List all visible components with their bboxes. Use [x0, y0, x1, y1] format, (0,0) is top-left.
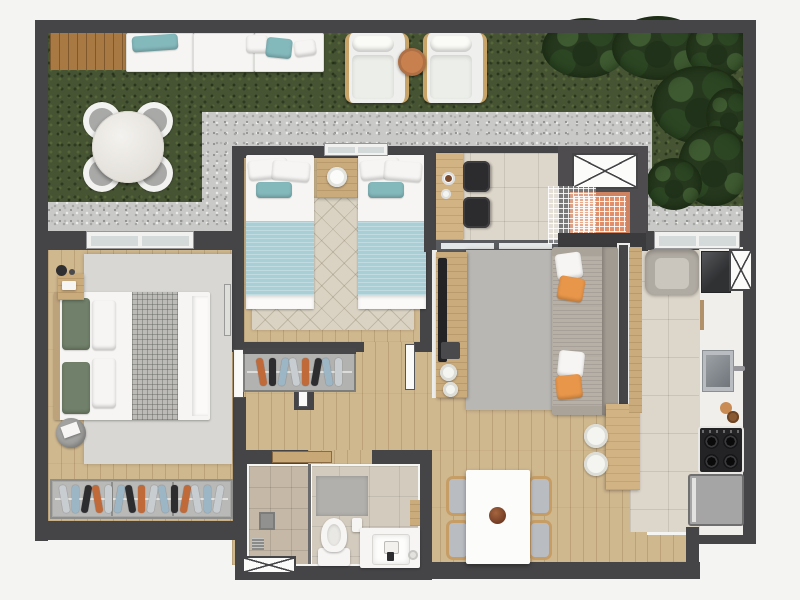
armchair-seat — [655, 258, 689, 289]
window-pane — [142, 236, 189, 246]
orange-pillow — [556, 275, 586, 303]
bar-stool — [584, 424, 608, 448]
fridge-hinges — [692, 478, 696, 522]
round-basin — [408, 550, 418, 560]
bathroom-shaft-box — [242, 556, 296, 574]
clothing-item — [59, 485, 71, 514]
bath-mat — [316, 476, 368, 516]
cutting-board — [700, 300, 704, 330]
balcony-wall-left — [424, 146, 436, 252]
nightstand-book — [62, 281, 76, 290]
wood-deck — [50, 32, 126, 70]
cooktop — [700, 428, 742, 472]
floor-plan-rendering — [0, 0, 800, 600]
single-bed-left — [246, 155, 314, 309]
bench-pillow-white — [293, 39, 317, 58]
balcony-chair — [463, 161, 490, 192]
sofa-backrest — [602, 247, 618, 415]
nightstand-lamp — [56, 265, 67, 276]
lounge-chair — [423, 33, 487, 103]
clothing-item — [147, 485, 159, 514]
clothing-item — [138, 485, 145, 513]
sheet-fold — [358, 295, 426, 309]
dining-chair — [528, 476, 552, 516]
stub-door — [298, 391, 308, 407]
white-pillow — [92, 358, 116, 408]
round-side-table — [398, 48, 426, 76]
nightstand-decor — [69, 269, 75, 275]
outer-wall-top — [35, 20, 756, 33]
hanging-clothes — [245, 354, 354, 390]
sheet-fold — [246, 295, 314, 309]
master-wardrobe — [50, 479, 233, 519]
dining-chair — [528, 520, 552, 560]
hall-open-wardrobe — [243, 348, 356, 392]
headboard — [54, 292, 60, 420]
clothing-item — [191, 485, 203, 514]
clothing-item — [288, 358, 300, 387]
bench-cushion-teal — [265, 37, 293, 60]
master-double-bed — [54, 292, 210, 420]
twin-bedroom-door-leaf — [405, 344, 415, 390]
sideboard-decor-box — [441, 342, 460, 359]
kitchen-dark-sink — [701, 251, 731, 293]
sliding-door-pane — [441, 243, 494, 249]
lounge-roll-pillow — [430, 36, 472, 52]
shrub — [646, 158, 702, 210]
bench-cushion-teal — [131, 33, 178, 52]
window-pane — [699, 236, 736, 246]
outer-wall-left — [35, 20, 48, 541]
clothing-item — [105, 485, 112, 513]
clothing-item — [72, 485, 79, 513]
burner — [723, 454, 738, 469]
teal-blanket — [246, 221, 314, 295]
fridge — [688, 474, 744, 526]
sink-basin — [706, 355, 730, 387]
orange-pillow — [555, 374, 583, 401]
sofa — [552, 247, 618, 415]
clothing-item — [310, 358, 322, 387]
master-hall-wall — [233, 397, 246, 521]
white-pillow — [92, 300, 116, 350]
round-marble-table — [92, 111, 164, 183]
sink-faucet — [733, 366, 745, 371]
balcony-chair — [463, 197, 490, 228]
clothing-item — [158, 485, 170, 514]
hanging-clothes — [53, 482, 230, 516]
balcony-wall-top — [424, 146, 568, 153]
clothing-item — [269, 358, 276, 386]
sofa-seat-cushion — [553, 307, 602, 355]
clothing-item — [335, 358, 342, 386]
clothing-item — [255, 358, 267, 387]
lounge-seat — [430, 55, 472, 99]
clothing-item — [213, 485, 225, 514]
outer-wall-bottom-dining — [424, 562, 700, 579]
sage-pillow — [62, 298, 90, 350]
vanity-faucet — [387, 552, 394, 561]
lounge-seat — [352, 55, 394, 99]
outer-wall-step — [686, 527, 699, 579]
teal-cushion — [368, 182, 404, 198]
saucer — [441, 189, 451, 199]
round-pouf — [440, 364, 457, 381]
burner — [704, 434, 719, 449]
outer-wall-bottom-left — [35, 521, 247, 540]
sliding-door-pane — [499, 243, 552, 249]
window-pane — [358, 147, 384, 153]
kitchen-steel-sink — [702, 350, 734, 392]
kitchen-shaft-box — [729, 249, 753, 291]
clothing-item — [171, 485, 178, 513]
single-bed-right — [358, 155, 426, 309]
clothing-item — [204, 485, 211, 513]
shower-drain — [252, 538, 264, 550]
lounge-roll-pillow — [352, 36, 394, 52]
breakfast-bar — [606, 404, 640, 490]
wall-mirror — [224, 284, 231, 336]
clothing-item — [180, 485, 192, 514]
clothing-item — [125, 485, 137, 514]
bed-pillow — [383, 159, 423, 182]
round-pouf — [443, 382, 458, 397]
jar — [727, 411, 739, 423]
window-pane — [91, 236, 138, 246]
clothing-item — [277, 358, 289, 387]
window-pane — [659, 236, 696, 246]
burner — [704, 454, 719, 469]
sofa-armrest — [552, 406, 602, 415]
kitchen-window — [654, 231, 740, 249]
shower-fixture — [259, 512, 275, 530]
duvet-fold — [192, 296, 208, 416]
clothing-item — [92, 485, 104, 514]
service-shaft-box — [572, 153, 638, 189]
living-rug — [466, 250, 554, 410]
bar-stool — [584, 452, 608, 476]
dining-floor-extension — [647, 535, 687, 562]
teal-cushion — [256, 182, 292, 198]
toilet-seat — [327, 524, 341, 546]
table-bowl — [489, 507, 506, 524]
cooktop-controls — [702, 430, 740, 433]
bed-pillow — [271, 159, 311, 182]
plaid-runner — [132, 292, 178, 420]
clothing-item — [321, 358, 333, 387]
kitchen-tall-cabinet — [629, 247, 642, 413]
shower-glass-screen — [308, 464, 311, 564]
clothing-item — [302, 358, 309, 386]
teal-blanket — [358, 221, 426, 295]
twin-bedroom-wall-left — [232, 146, 244, 352]
window-pane — [328, 147, 355, 153]
bathroom-wall-shelf — [410, 500, 420, 526]
clothing-item — [81, 485, 93, 514]
bathroom-door-leaf — [272, 451, 332, 463]
master-bedroom-window — [86, 231, 194, 249]
armchair — [645, 249, 699, 295]
twin-bedroom-window — [324, 143, 388, 156]
sage-pillow — [62, 362, 90, 414]
clothing-item — [114, 485, 126, 514]
coffee — [445, 175, 452, 182]
twin-table-lamp — [327, 167, 347, 187]
burner — [723, 434, 738, 449]
